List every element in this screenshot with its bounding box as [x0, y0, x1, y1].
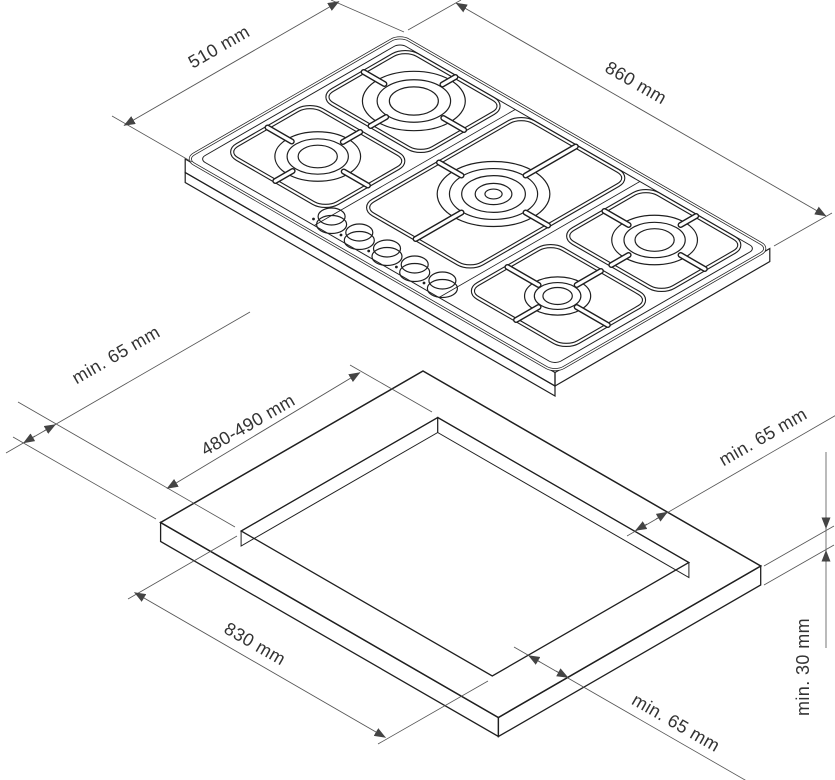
- countertop-cutout-drawing: min. 65 mm 480-490 mm min. 65 mm 830 mm …: [6, 312, 835, 780]
- hob-drawing: 510 mm 860 mm: [112, 0, 832, 396]
- dimension-worktop-thickness: min. 30 mm: [764, 452, 834, 716]
- cutout-depth-label: 480-490 mm: [198, 390, 299, 460]
- clearance-right-label: min. 65 mm: [716, 404, 811, 470]
- installation-diagram: 510 mm 860 mm min. 65 mm: [0, 0, 835, 780]
- clearance-left-label: min. 65 mm: [69, 322, 164, 388]
- hob-width-label: 860 mm: [602, 57, 670, 108]
- worktop-thickness-label: min. 30 mm: [793, 618, 813, 716]
- diagram-canvas: 510 mm 860 mm min. 65 mm: [0, 0, 835, 780]
- hob-top-face: [185, 35, 770, 373]
- clearance-front-label: min. 65 mm: [629, 690, 724, 756]
- hob-depth-label: 510 mm: [185, 21, 253, 72]
